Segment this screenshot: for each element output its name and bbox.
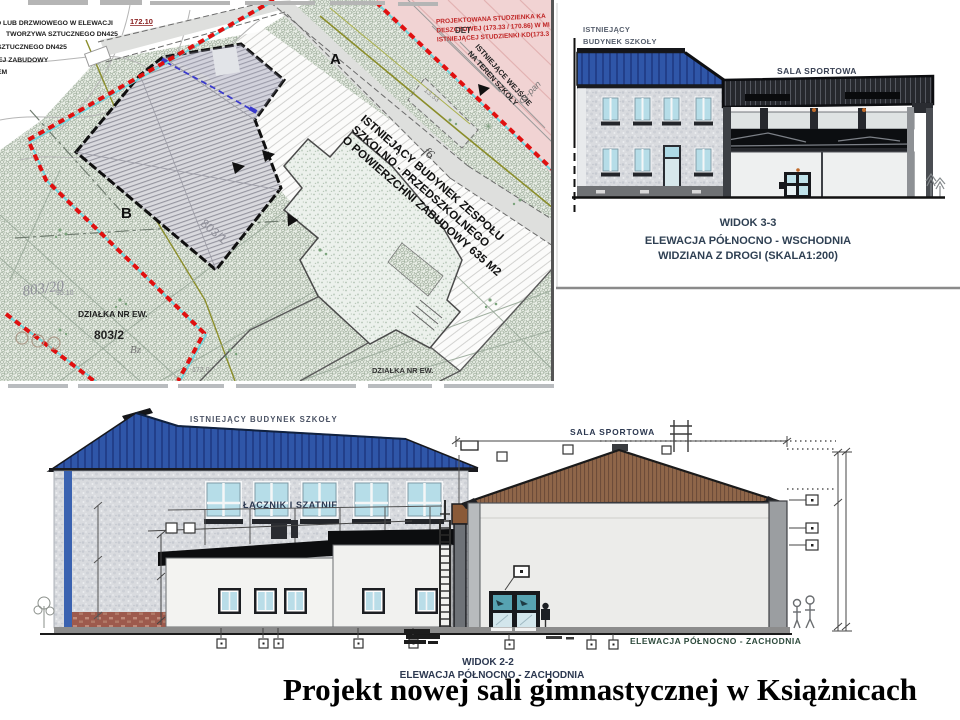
svg-text:ISTNIEJĄCY BUDYNEK SZKOŁY: ISTNIEJĄCY BUDYNEK SZKOŁY [190,415,338,424]
svg-text:Bz: Bz [130,344,142,356]
svg-text:95.10: 95.10 [56,290,74,297]
svg-text:EJ ZABUDOWY: EJ ZABUDOWY [0,57,49,64]
svg-text:WIDOK 3-3: WIDOK 3-3 [720,217,777,229]
svg-text:B: B [121,205,132,222]
svg-text:ELEWACJA PÓŁNOCNO - ZACHODNIA: ELEWACJA PÓŁNOCNO - ZACHODNIA [630,635,801,646]
svg-text:WIDZIANA Z DROGI (SKALA1:200): WIDZIANA Z DROGI (SKALA1:200) [658,250,838,262]
svg-text:172.10: 172.10 [130,17,153,26]
svg-text:DZIAŁKA NR EW.: DZIAŁKA NR EW. [78,309,148,319]
svg-text:ELEWACJA PÓŁNOCNO - WSCHODNIA: ELEWACJA PÓŁNOCNO - WSCHODNIA [645,234,851,247]
svg-text:EGO LUB DRZWIOWEGO W ELEWACJI: EGO LUB DRZWIOWEGO W ELEWACJI [0,20,113,27]
svg-text:WIDOK 2-2: WIDOK 2-2 [462,657,514,668]
svg-text:BUDYNEK SZKOŁY: BUDYNEK SZKOŁY [583,37,657,46]
svg-text:TWORZYWA SZTUCZNEGO DN425: TWORZYWA SZTUCZNEGO DN425 [6,31,118,38]
svg-text:172.0: 172.0 [192,367,210,374]
svg-text:EM: EM [0,69,8,76]
svg-text:✳: ✳ [484,122,492,133]
svg-text:A: A [330,51,341,68]
svg-text:SZTUCZNEGO DN425: SZTUCZNEGO DN425 [0,44,67,51]
svg-text:DET: DET [455,26,471,35]
svg-text:SALA SPORTOWA: SALA SPORTOWA [570,427,655,437]
svg-text:DZIAŁKA NR EW.: DZIAŁKA NR EW. [372,366,433,375]
svg-text:SALA SPORTOWA: SALA SPORTOWA [777,66,857,76]
svg-text:ISTNIEJĄCY: ISTNIEJĄCY [583,25,630,34]
svg-text:Projekt nowej sali gimnasty: Projekt nowej sali gimnastycznej w Książ… [283,672,917,707]
svg-text:803/2: 803/2 [94,328,124,342]
